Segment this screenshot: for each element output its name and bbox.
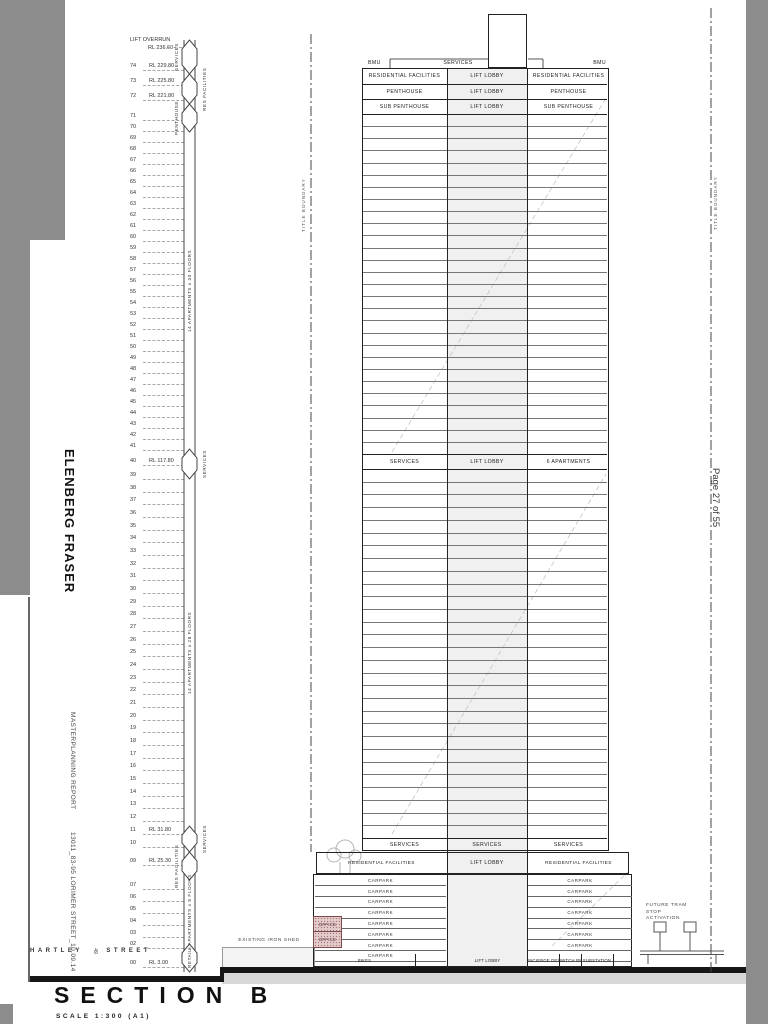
carpark-row: CARPARK — [528, 940, 632, 951]
carpark-label: CARPARK — [368, 921, 393, 926]
core-wall-right — [527, 68, 528, 968]
band-cell: SERVICES — [362, 842, 447, 848]
office-box: OFFICE — [313, 931, 342, 948]
band-cell: LIFT LOBBY — [447, 73, 527, 79]
carpark-label: CARPARK — [368, 889, 393, 894]
carpark-row: CARPARK — [315, 876, 446, 887]
bmu-label-right: BMU — [582, 58, 606, 68]
office-label: OFFICE — [319, 937, 337, 942]
carpark-row: CARPARK — [528, 886, 632, 897]
band-penthouse: PENTHOUSE LIFT LOBBY PENTHOUSE — [362, 84, 610, 99]
band-cell: SUB PENTHOUSE — [362, 104, 447, 110]
gap-cell — [416, 954, 448, 967]
switch-room: SWITCH RM — [560, 954, 582, 967]
band-cell: RESIDENTIAL FACILITIES — [527, 861, 630, 866]
carpark-label: CARPARK — [567, 889, 592, 894]
level-rl: RL 117.80 — [148, 458, 175, 464]
ground-lift-lobby: LIFT LOBBY — [448, 954, 528, 967]
strip-label: RES FACILITIES — [198, 74, 211, 104]
carpark-label: CARPARK — [368, 943, 393, 948]
carpark-label: CARPARK — [567, 943, 592, 948]
strip-label: SERVICES — [198, 449, 211, 479]
viewer-margin-left — [0, 0, 30, 595]
ground-step — [220, 967, 224, 982]
band-cell: LIFT LOBBY — [447, 89, 527, 95]
band-services-low: SERVICES SERVICES SERVICES — [362, 838, 610, 852]
band-cell: 6 APARTMENTS — [527, 459, 610, 465]
carpark-label: CARPARK — [368, 932, 393, 937]
level-rl: RL 31.80 — [148, 827, 172, 833]
carpark-row: CARPARK — [528, 919, 632, 930]
band-cell: PENTHOUSE — [527, 89, 610, 95]
band-cell: PENTHOUSE — [362, 89, 447, 95]
gap-cell — [614, 954, 631, 967]
level-rl: RL 221.80 — [148, 93, 175, 99]
band-cell: RESIDENTIAL FACILITIES — [527, 73, 610, 79]
band-cell: SUB PENTHOUSE — [527, 104, 610, 110]
core-wall-left — [447, 68, 448, 968]
carpark-label: CARPARK — [368, 910, 393, 915]
lift-overrun-box — [488, 14, 527, 68]
band-cell: RESIDENTIAL FACILITIES — [316, 861, 447, 866]
carpark-label: CARPARK — [368, 899, 393, 904]
viewer-margin-bottom-left — [0, 1004, 13, 1024]
band-cell: LIFT LOBBY — [447, 459, 527, 465]
band-cell: LIFT LOBBY — [447, 104, 527, 110]
carpark-label: CARPARK — [567, 921, 592, 926]
strip-label: 6 APARTMENTS x 8 FLOORS — [183, 880, 196, 944]
carpark-label: CARPARK — [567, 878, 592, 883]
carpark-label: CARPARK — [567, 899, 592, 904]
carpark-row: CARPARK — [528, 929, 632, 940]
band-mid-services: SERVICES LIFT LOBBY 6 APARTMENTS — [362, 454, 610, 469]
strip-label: RETAIL — [183, 944, 196, 972]
level-rl: RL 25.30 — [148, 858, 172, 864]
bmu-label-left: BMU — [368, 58, 381, 68]
band-cell: SERVICES — [362, 459, 447, 465]
drawing-sheet: { "page": {"indicator": "Page 27 of 55"}… — [0, 0, 768, 1024]
bikes-room: BIKES — [315, 954, 416, 967]
concierge-desk-room: CONCIERGE DESK — [528, 954, 560, 967]
carpark-row: CARPARK — [528, 908, 632, 919]
carpark-row: CARPARK — [315, 897, 446, 908]
band-cell: RESIDENTIAL FACILITIES — [362, 73, 447, 79]
ground-line-left — [30, 976, 224, 982]
podium-bottom-row: BIKES LIFT LOBBY CONCIERGE DESK SWITCH R… — [315, 954, 631, 967]
earth-band — [222, 973, 746, 984]
carpark-row: CARPARK — [315, 886, 446, 897]
strip-label: 14 APARTMENTS x 28 FLOORS — [183, 479, 196, 826]
carpark-label: CARPARK — [567, 910, 592, 915]
carpark-label: CARPARK — [368, 878, 393, 883]
ground-line-right — [222, 967, 746, 973]
band-cell: LIFT LOBBY — [447, 860, 527, 866]
strip-label: PENTHOUSE — [170, 104, 183, 132]
band-podium-residential: RESIDENTIAL FACILITIES LIFT LOBBY RESIDE… — [316, 852, 630, 874]
band-cell: SERVICES — [447, 842, 527, 848]
carpark-column-right: CARPARKCARPARKCARPARKCARPARKCARPARKCARPA… — [528, 876, 632, 962]
carpark-label: CARPARK — [567, 932, 592, 937]
strip-label: 14 APARTMENTS x 30 FLOORS — [183, 132, 196, 449]
level-rl: RL 225.80 — [148, 78, 175, 84]
carpark-row: CARPARK — [528, 876, 632, 887]
strip-label: SERVICES — [198, 826, 211, 852]
band-residential-top: RESIDENTIAL FACILITIES LIFT LOBBY RESIDE… — [362, 68, 610, 84]
band-sub-penthouse: SUB PENTHOUSE LIFT LOBBY SUB PENTHOUSE — [362, 99, 610, 114]
strip-label: RES FACILITIES — [170, 852, 183, 880]
substation-room: SUBSTATION — [582, 954, 614, 967]
band-cell: SERVICES — [527, 842, 610, 848]
carpark-row: CARPARK — [528, 897, 632, 908]
office-label: OFFICE — [319, 922, 337, 927]
viewer-margin-right — [746, 0, 768, 1024]
strip-label: SERVICES — [170, 40, 183, 74]
level-rl: RL 3.00 — [148, 960, 169, 966]
services-roof-label: SERVICES — [428, 58, 488, 68]
